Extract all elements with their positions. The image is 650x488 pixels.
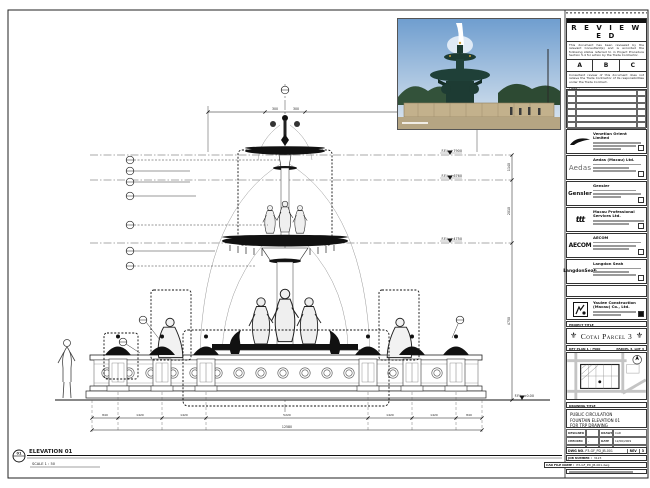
bdim-3: 5220 [283,413,291,417]
keyplan-map-image [567,353,646,399]
reviewed-stamp: R E V I E W E D This document has been r… [566,18,647,88]
vdim-label-2: 4750 [507,317,511,325]
elevation-title: ELEVATION 01 [29,449,73,455]
keyplan-band: KEY PLAN 1 : 7500 PARCEL 3, LOT 3 [566,345,647,351]
balustrade [86,355,486,398]
drawn-value: CAD [613,429,647,437]
project-title-band: PROJECT TITLE [566,321,647,327]
fleur-emblem-icon: ⚜ [570,332,577,340]
consultant-checkbox [638,145,644,151]
consultant-checkbox [638,223,644,229]
dwg-number-row: DWG NO. P3-GF_PD_JB-001 REV 3 [566,447,647,454]
drawing-title-band: DRAWING TITLE [566,402,647,408]
vdim-label-0: 1140 [507,163,511,171]
stamp-title: R E V I E W E D [567,23,646,42]
dwg-number: P3-GF_PD_JB-001 [585,449,626,453]
job-number-row: JOB NUMBER : 3123 [566,455,647,461]
consultant-checkbox [638,249,644,255]
level-label-3: F.F.L. ±0.00 [515,394,534,398]
scale-figure [58,340,75,399]
designed-value [586,429,599,437]
bdim-2: 1420 [180,413,188,417]
consultant-name: Gensler [593,184,644,188]
stamp-grade-row: A B C [567,59,646,72]
date-value: 12/06/2009 [613,437,647,445]
date-label: DATE [599,437,613,445]
langdon-seah-logo: LangdonSeah [563,269,597,274]
drawing-title-text: PUBLIC CIRCULATION FOUNTAIN ELEVATION 01… [566,409,647,428]
revision-table: REV DATE / DESCRIPTION INIT [566,89,647,128]
mps-logo: ttt [576,215,584,224]
consultant-name: Aedas (Macau) Ltd. [593,158,644,162]
consultant-name: Venetian Orient Limited [593,132,644,140]
keyplan-scale: 1 : 7500 [587,347,601,351]
yaulee-logo-icon [567,299,593,319]
stamp-paragraph-1: This document has been reviewed by the r… [569,44,644,58]
rev-label: REV [627,449,639,453]
project-title-banner: ⚜ Cotai Parcel 3 ⚜ [566,328,647,344]
contractor-name: Yaulee Construction (Macau) Co., Ltd. [593,301,644,309]
stamp-paragraph-2: Consultant review of this document does … [569,74,644,85]
contractor-checkbox [638,311,644,317]
elevation-marker: 01 [16,452,22,456]
keyplan-map [566,352,647,400]
empty-consultant-box [566,285,647,297]
tier2-bowl [222,235,348,264]
titleblock-fields: DESIGNED DRAWN CAD CHECKED - DATE 12/06/… [566,429,647,446]
aedas-logo: Aedas [569,164,591,172]
job-label: JOB NUMBER : [568,456,592,460]
bdim-0: 840 [102,413,108,417]
contractor-box: Yaulee Construction (Macau) Co., Ltd. [566,298,647,320]
dwg-label: DWG NO. [567,449,585,453]
stamp-grade-b: B [593,60,619,71]
designed-label: DESIGNED [566,429,586,437]
title-block-panel: R E V I E W E D This document has been r… [566,10,647,478]
elevation-label: 01 ELEVATION 01 SCALE 1 : 50 [13,449,562,467]
bdim-6: 840 [466,413,472,417]
upper-statues [263,168,307,238]
fountain-photo-image [398,19,560,129]
stamp-grade-c: C [620,60,646,71]
checked-value: - [586,437,599,445]
consultant-checkbox [638,197,644,203]
bdim-5: 1420 [430,413,438,417]
right-dimension: 1140 2010 4750 [507,153,514,401]
fountain-photo [397,18,561,130]
consultant-name: AECOM [593,236,644,240]
consultant-checkbox [638,171,644,177]
cad-file-row: CAD FILE NAME : P3-GF_PD_JB-001.dwg [544,462,647,468]
level-label-0: F.F.L. +7900 [442,149,462,153]
consultant-aecom: AECOM AECOM [566,233,647,258]
file-label: CAD FILE NAME : [546,463,574,467]
venetian-logo-icon [567,130,593,153]
job-value: 3123 [594,456,602,460]
consultant-macau-professional: ttt Macau Professional Services Ltd. [566,207,647,232]
drawing-band-label: DRAWING TITLE [569,404,596,406]
sheet-notes-strip [566,10,647,16]
drawn-label: DRAWN [599,429,613,437]
bdim-1: 1420 [136,413,144,417]
keyplan-parcel: PARCEL 3, LOT 3 [616,347,644,349]
checked-label: CHECKED [566,437,586,445]
consultant-venetian: Venetian Orient Limited [566,129,647,154]
drawing-sheet: 300 300 [0,0,650,488]
consultant-aedas: Aedas Aedas (Macau) Ltd. [566,155,647,180]
elevation-scale: SCALE 1 : 50 [32,462,56,466]
fleur-emblem-icon: ⚜ [636,332,643,340]
level-label-2: F.F.L. +4750 [442,237,462,241]
bdim-4: 1420 [386,413,394,417]
lower-statues [206,262,364,356]
consultant-name: Langdon Seah [593,262,644,266]
project-title: Cotai Parcel 3 [581,332,633,341]
top-dim-label-0: 300 [272,107,278,111]
keyplan-label: KEY PLAN [569,347,586,351]
top-dim-label-1: 300 [293,107,299,111]
stamp-grade-a: A [567,60,593,71]
drawing-title-line-3: FOR TRP DRAWING [570,423,643,429]
overall-dim: 12580 [282,425,292,429]
consultant-checkbox [638,275,644,281]
reference-file-row [566,469,647,474]
consultant-name: Macau Professional Services Ltd. [593,210,644,218]
rev-value: 3 [639,449,646,453]
aecom-logo: AECOM [569,242,592,249]
file-value: P3-GF_PD_JB-001.dwg [576,463,609,467]
level-label-1: F.F.L. +6760 [442,174,462,178]
vdim-label-1: 2010 [507,207,511,215]
consultant-gensler: Gensler Gensler [566,181,647,206]
consultant-langdon-seah: LangdonSeah Langdon Seah [566,259,647,284]
project-band-label: PROJECT TITLE [569,323,594,325]
fountain-top-ornament [270,115,300,146]
gensler-logo: Gensler [568,191,592,197]
